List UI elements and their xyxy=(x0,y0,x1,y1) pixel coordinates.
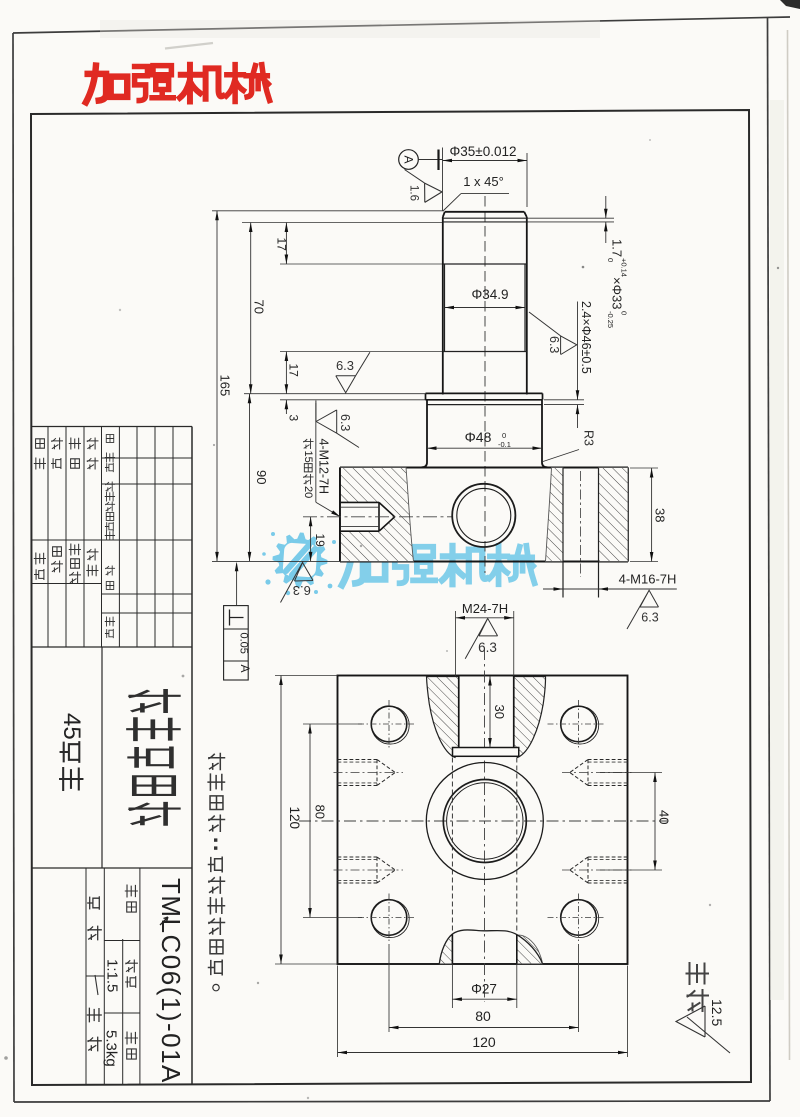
svg-text:40: 40 xyxy=(657,810,672,824)
svg-text:2.4×Φ46±0.5: 2.4×Φ46±0.5 xyxy=(579,301,593,374)
svg-text:45: 45 xyxy=(58,713,85,740)
svg-text:1.6: 1.6 xyxy=(408,185,420,201)
svg-text:90: 90 xyxy=(254,470,269,484)
svg-text:+0.14: +0.14 xyxy=(620,258,629,277)
svg-text:120: 120 xyxy=(287,807,302,830)
svg-text:4-M16-7H: 4-M16-7H xyxy=(619,572,677,587)
svg-text:Φ27: Φ27 xyxy=(471,982,497,997)
svg-text:3: 3 xyxy=(287,415,301,422)
svg-text:20: 20 xyxy=(302,486,314,498)
svg-text:15: 15 xyxy=(302,451,314,463)
svg-text:4-M12-7H: 4-M12-7H xyxy=(317,439,331,495)
svg-text:0.05: 0.05 xyxy=(238,633,250,654)
svg-text:A: A xyxy=(238,665,252,673)
svg-text:Φ35±0.012: Φ35±0.012 xyxy=(450,144,517,159)
svg-text:0: 0 xyxy=(502,431,506,440)
svg-text:165: 165 xyxy=(218,375,233,397)
svg-text:0: 0 xyxy=(620,311,629,315)
svg-text:6.3: 6.3 xyxy=(641,611,658,625)
svg-text:5.3kg: 5.3kg xyxy=(103,1030,120,1067)
svg-text:M24-7H: M24-7H xyxy=(462,601,508,616)
svg-text:30: 30 xyxy=(492,705,507,719)
svg-text:19: 19 xyxy=(313,534,327,548)
svg-text:1.7: 1.7 xyxy=(610,239,625,257)
svg-text:80: 80 xyxy=(313,805,328,819)
svg-text:-0.25: -0.25 xyxy=(606,311,615,328)
svg-text:17: 17 xyxy=(275,238,289,252)
svg-text:-0.1: -0.1 xyxy=(498,440,511,449)
svg-text:6.3: 6.3 xyxy=(478,640,497,655)
svg-text:80: 80 xyxy=(475,1008,491,1024)
svg-text:38: 38 xyxy=(653,508,668,522)
svg-text:0: 0 xyxy=(606,258,615,262)
svg-text:17: 17 xyxy=(287,364,301,378)
svg-text:1:1.5: 1:1.5 xyxy=(104,959,121,992)
svg-text:6.3: 6.3 xyxy=(293,583,311,598)
svg-text:A: A xyxy=(402,156,416,164)
svg-text:70: 70 xyxy=(252,300,267,314)
svg-text:×Φ33: ×Φ33 xyxy=(610,277,625,309)
svg-text:6.3: 6.3 xyxy=(338,414,352,431)
svg-text:Φ34.9: Φ34.9 xyxy=(471,287,508,302)
svg-text:6.3: 6.3 xyxy=(547,336,561,353)
svg-text:R3: R3 xyxy=(582,430,596,446)
svg-text:6.3: 6.3 xyxy=(336,358,354,373)
svg-text:120: 120 xyxy=(472,1034,496,1050)
svg-text:1 x 45°: 1 x 45° xyxy=(463,174,504,189)
svg-text:TMLC06(1)-01A: TMLC06(1)-01A xyxy=(156,878,186,1084)
svg-text:12.5: 12.5 xyxy=(709,999,725,1026)
svg-text:Φ48: Φ48 xyxy=(465,429,492,445)
